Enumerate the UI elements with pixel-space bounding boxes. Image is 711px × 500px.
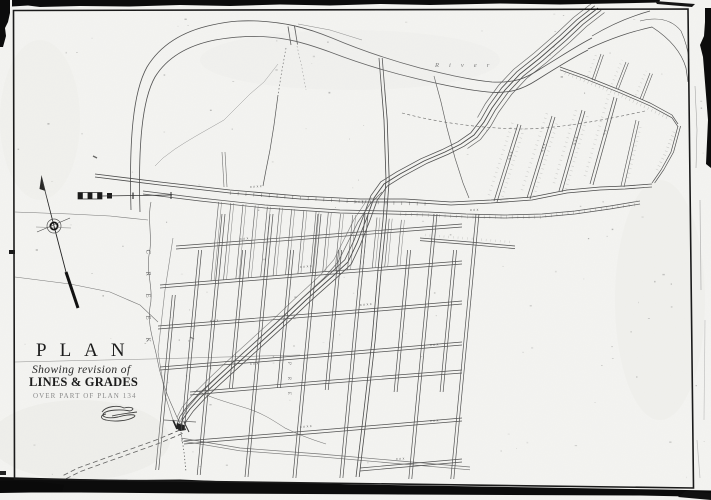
svg-text:xxx: xxx [430,418,440,423]
svg-text:R: R [286,376,292,381]
svg-text:OVER PART OF PLAN 134: OVER PART OF PLAN 134 [33,392,137,400]
svg-text:xxx: xxx [396,456,406,461]
svg-text:E: E [286,391,292,396]
svg-text:PLAN: PLAN [36,340,138,361]
svg-text:xxx: xxx [470,208,480,212]
svg-text:P: P [286,361,292,366]
svg-text:LINES & GRADES: LINES & GRADES [29,375,138,389]
